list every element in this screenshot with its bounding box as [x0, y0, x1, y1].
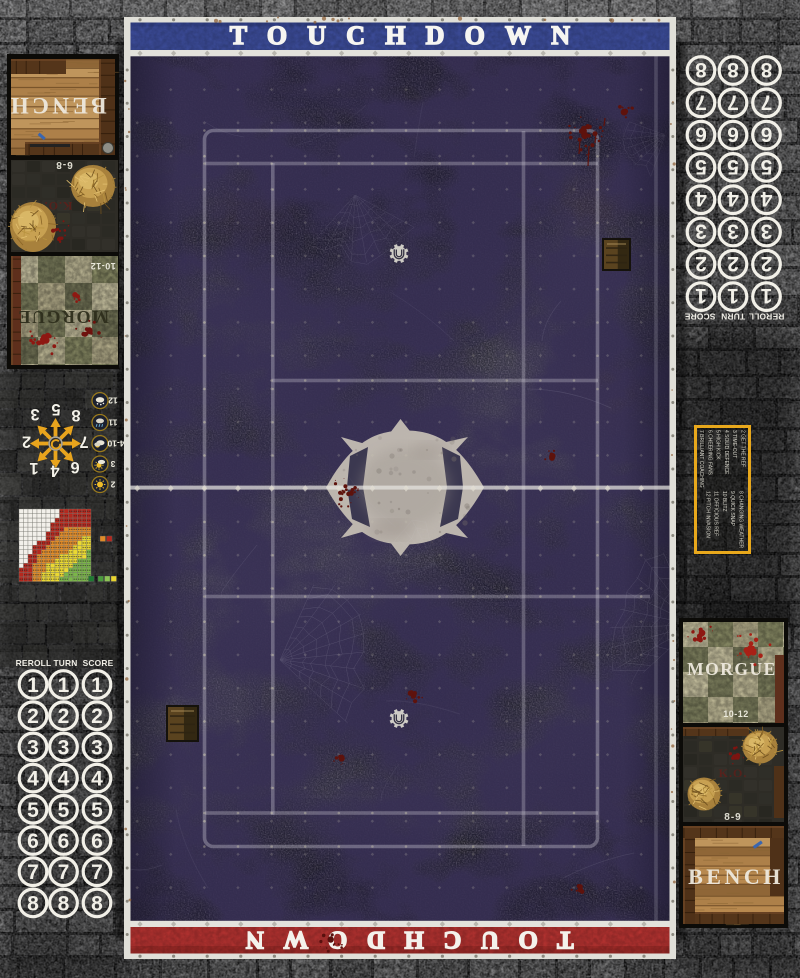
svg-text:7: 7: [79, 433, 88, 451]
svg-text:4: 4: [27, 768, 39, 791]
svg-text:3: 3: [30, 405, 39, 423]
svg-text:4-10: 4-10: [107, 439, 124, 449]
svg-text:REROLL: REROLL: [16, 658, 52, 668]
svg-text:2: 2: [727, 252, 739, 275]
svg-text:5: 5: [760, 155, 772, 178]
svg-text:TURN: TURN: [721, 312, 745, 322]
svg-text:10-12: 10-12: [90, 261, 116, 271]
svg-text:8: 8: [695, 58, 707, 81]
svg-text:7: 7: [761, 90, 773, 113]
svg-text:TOUCHDOWN: TOUCHDOWN: [226, 926, 573, 953]
svg-text:4: 4: [695, 187, 707, 210]
svg-text:6: 6: [761, 123, 773, 146]
svg-text:6: 6: [91, 830, 103, 853]
svg-text:12: 12: [108, 396, 118, 406]
svg-text:SCORE: SCORE: [83, 658, 114, 668]
svg-text:MORGUE: MORGUE: [17, 307, 109, 327]
svg-text:10-12: 10-12: [723, 709, 749, 719]
svg-text:TOUCHDOWN: TOUCHDOWN: [230, 21, 590, 50]
svg-text:5: 5: [51, 400, 60, 418]
svg-text:1: 1: [29, 459, 38, 477]
svg-text:7 BRILLIANT COACHING: 7 BRILLIANT COACHING: [698, 430, 704, 488]
svg-text:6: 6: [27, 830, 39, 853]
svg-text:K.O.: K.O.: [719, 766, 748, 780]
svg-text:2: 2: [695, 252, 707, 275]
svg-text:1: 1: [727, 284, 739, 307]
svg-text:8 CHANGING WEATHER: 8 CHANGING WEATHER: [738, 491, 744, 549]
svg-text:SCORE: SCORE: [684, 312, 715, 322]
svg-text:12 PITCH INVASION: 12 PITCH INVASION: [704, 491, 710, 538]
svg-text:1: 1: [695, 284, 707, 307]
svg-text:6: 6: [58, 830, 70, 853]
svg-text:5 HIGH KICK: 5 HIGH KICK: [715, 430, 721, 460]
svg-text:5: 5: [695, 155, 707, 178]
svg-text:2: 2: [58, 705, 70, 728]
svg-text:5: 5: [727, 155, 739, 178]
svg-text:8: 8: [91, 892, 103, 915]
svg-text:3: 3: [761, 220, 773, 243]
svg-text:4: 4: [91, 768, 103, 791]
svg-text:3: 3: [27, 736, 39, 759]
svg-text:3 TIME-OUT: 3 TIME-OUT: [731, 430, 737, 458]
svg-text:3: 3: [727, 220, 739, 243]
svg-text:2: 2: [761, 252, 773, 275]
svg-text:1: 1: [760, 284, 772, 307]
svg-text:8: 8: [760, 58, 772, 81]
svg-text:K.O.: K.O.: [44, 199, 73, 213]
svg-text:8: 8: [27, 892, 39, 915]
svg-text:6: 6: [695, 123, 707, 146]
svg-text:2: 2: [22, 433, 31, 451]
svg-text:4: 4: [50, 462, 60, 480]
svg-text:BENCH: BENCH: [7, 93, 106, 118]
svg-text:7: 7: [91, 861, 103, 884]
svg-text:BENCH: BENCH: [688, 864, 784, 889]
svg-text:2: 2: [91, 705, 103, 728]
svg-text:6 CHEERING FANS: 6 CHEERING FANS: [706, 430, 712, 476]
svg-text:1: 1: [58, 674, 70, 697]
svg-text:3: 3: [91, 736, 103, 759]
svg-text:5: 5: [27, 799, 39, 822]
svg-text:6: 6: [70, 458, 79, 476]
svg-text:2: 2: [27, 705, 39, 728]
svg-text:10 BLITZ: 10 BLITZ: [721, 491, 727, 512]
svg-text:11 OFFICIOUS REF: 11 OFFICIOUS REF: [713, 491, 719, 536]
svg-text:8-9: 8-9: [724, 812, 741, 823]
svg-text:4 SOLID DEFENCE: 4 SOLID DEFENCE: [723, 430, 729, 475]
svg-text:3: 3: [58, 736, 70, 759]
svg-text:6-8: 6-8: [55, 159, 72, 170]
svg-text:2 GET THE REF: 2 GET THE REF: [740, 430, 746, 467]
svg-text:4: 4: [760, 187, 772, 210]
svg-text:MORGUE: MORGUE: [687, 659, 777, 679]
svg-text:4: 4: [727, 187, 739, 210]
svg-text:1: 1: [91, 674, 103, 697]
svg-text:6: 6: [727, 123, 739, 146]
svg-text:7: 7: [27, 861, 39, 884]
svg-text:TURN: TURN: [53, 658, 77, 668]
svg-text:8: 8: [71, 406, 80, 424]
svg-text:9 QUICK SNAP: 9 QUICK SNAP: [729, 491, 735, 527]
svg-text:1: 1: [27, 674, 39, 697]
svg-text:7: 7: [58, 861, 70, 884]
svg-text:8: 8: [727, 58, 739, 81]
svg-text:3: 3: [110, 459, 115, 469]
svg-text:7: 7: [727, 90, 739, 113]
svg-text:4: 4: [58, 768, 70, 791]
svg-text:8: 8: [58, 892, 70, 915]
svg-text:5: 5: [91, 799, 103, 822]
svg-text:REROLL: REROLL: [749, 312, 785, 322]
svg-text:7: 7: [695, 90, 707, 113]
svg-text:11: 11: [108, 418, 117, 428]
svg-text:3: 3: [695, 220, 707, 243]
svg-text:2: 2: [110, 480, 115, 490]
svg-text:5: 5: [58, 799, 70, 822]
